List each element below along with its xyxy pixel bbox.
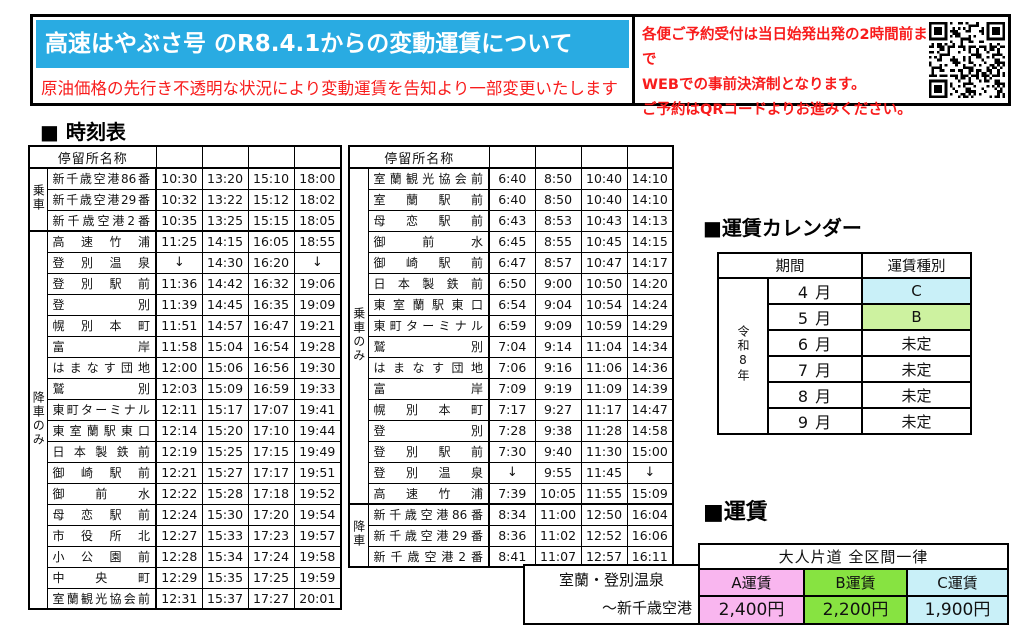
time-cell: 12:27 — [156, 525, 202, 546]
time-cell: 16:06 — [627, 525, 673, 546]
time-cell: 18:55 — [294, 231, 341, 252]
time-cell: 6:59 — [489, 315, 535, 336]
time-cell: 15:35 — [202, 567, 248, 588]
time-cell: 16:04 — [627, 504, 673, 525]
time-cell: 13:25 — [202, 210, 248, 231]
fare-type-cell: B — [862, 304, 971, 330]
station-cell: 富岸 — [47, 336, 156, 357]
table-row: 乗車のみ室蘭観光協会前6:408:5010:4014:10 — [349, 168, 673, 189]
time-cell: 19:49 — [294, 441, 341, 462]
time-cell: 16:20 — [248, 252, 294, 273]
time-cell: 15:17 — [202, 399, 248, 420]
time-cell: 17:25 — [248, 567, 294, 588]
table-row: 新千歳空港29番8:3611:0212:5216:06 — [349, 525, 673, 546]
time-cell: 19:44 — [294, 420, 341, 441]
table-row: はまなす団地7:069:1611:0614:36 — [349, 357, 673, 378]
station-cell: 御崎駅前 — [47, 462, 156, 483]
time-cell: 15:33 — [202, 525, 248, 546]
time-column-header — [248, 146, 294, 168]
time-cell: 6:40 — [489, 189, 535, 210]
time-cell: 9:16 — [535, 357, 581, 378]
table-row: 高速竹浦7:3910:0511:5515:09 — [349, 483, 673, 504]
station-cell: 高速竹浦 — [368, 483, 489, 504]
time-cell: 14:13 — [627, 210, 673, 231]
fare-heading: ■運賃 — [703, 494, 768, 526]
station-cell: 富岸 — [368, 378, 489, 399]
skip-arrow-cell: ↓ — [294, 252, 341, 273]
time-cell: 15:27 — [202, 462, 248, 483]
stop-name-header: 停留所名称 — [29, 146, 156, 168]
time-cell: 17:07 — [248, 399, 294, 420]
station-cell: 市役所北 — [47, 525, 156, 546]
month-cell: 5 月 — [768, 304, 862, 330]
time-cell: 11:55 — [581, 483, 627, 504]
time-column-header — [489, 146, 535, 168]
time-cell: 7:06 — [489, 357, 535, 378]
time-cell: 15:09 — [627, 483, 673, 504]
table-row: はまなす団地12:0015:0616:5619:30 — [29, 357, 341, 378]
station-cell: 登別駅前 — [368, 441, 489, 462]
time-cell: 19:09 — [294, 294, 341, 315]
station-cell: 新千歳空港86番 — [47, 168, 156, 189]
time-cell: 14:29 — [627, 315, 673, 336]
time-cell: 15:10 — [248, 168, 294, 189]
time-cell: 15:09 — [202, 378, 248, 399]
time-cell: 14:15 — [202, 231, 248, 252]
table-row: 登別温泉↓9:5511:45↓ — [349, 462, 673, 483]
station-cell: 鷲別 — [368, 336, 489, 357]
time-cell: 15:15 — [248, 210, 294, 231]
time-cell: 11:00 — [535, 504, 581, 525]
station-cell: 登別駅前 — [47, 273, 156, 294]
time-cell: 11:45 — [581, 462, 627, 483]
time-cell: 14:36 — [627, 357, 673, 378]
banner-subtitle: 原油価格の先行き不透明な状況により変動運賃を告知より一部変更いたします — [41, 75, 629, 99]
time-cell: 10:40 — [581, 168, 627, 189]
time-cell: 17:23 — [248, 525, 294, 546]
calendar-row: 令和8年4 月C — [718, 278, 971, 304]
time-cell: 11:51 — [156, 315, 202, 336]
time-cell: 14:17 — [627, 252, 673, 273]
station-cell: 新千歳空港2番 — [47, 210, 156, 231]
group-label-text: 降車 — [353, 520, 365, 548]
station-cell: 高速竹浦 — [47, 231, 156, 252]
table-row: 富岸7:099:1911:0914:39 — [349, 378, 673, 399]
time-cell: 10:32 — [156, 189, 202, 210]
fare-header-cell: 大人片道 全区間一律 — [698, 543, 1009, 570]
time-cell: 8:57 — [535, 252, 581, 273]
station-cell: 中央町 — [47, 567, 156, 588]
period-header: 期間 — [718, 253, 862, 278]
time-cell: 12:28 — [156, 546, 202, 567]
fare-type-cell: 未定 — [862, 356, 971, 382]
time-cell: 11:09 — [581, 378, 627, 399]
time-column-header — [627, 146, 673, 168]
time-cell: 17:27 — [248, 588, 294, 609]
station-cell: 東室蘭駅東口 — [368, 294, 489, 315]
time-cell: 18:02 — [294, 189, 341, 210]
station-cell: 母恋駅前 — [47, 504, 156, 525]
time-cell: 11:39 — [156, 294, 202, 315]
notice-line-1: 各便ご予約受付は当日始発出発の2時間前まで — [642, 23, 932, 73]
table-row: 登別駅前11:3614:4216:3219:06 — [29, 273, 341, 294]
station-cell: 登別温泉 — [47, 252, 156, 273]
time-column-header — [294, 146, 341, 168]
time-cell: 15:04 — [202, 336, 248, 357]
station-cell: 東町ターミナル — [47, 399, 156, 420]
time-cell: 6:54 — [489, 294, 535, 315]
time-cell: 19:06 — [294, 273, 341, 294]
station-cell: 日本製鉄前 — [368, 273, 489, 294]
fare-type-label: A運賃 — [698, 568, 805, 597]
time-cell: 15:34 — [202, 546, 248, 567]
fare-route-line1: 室蘭・登別温泉 — [531, 569, 692, 590]
skip-arrow-cell: ↓ — [156, 252, 202, 273]
group-label: 降車 — [349, 504, 368, 567]
month-cell: 6 月 — [768, 330, 862, 356]
time-cell: 6:43 — [489, 210, 535, 231]
time-cell: 8:55 — [535, 231, 581, 252]
time-cell: 10:47 — [581, 252, 627, 273]
time-cell: 10:35 — [156, 210, 202, 231]
fare-price: 1,900円 — [906, 595, 1009, 625]
time-cell: 9:19 — [535, 378, 581, 399]
time-cell: 16:56 — [248, 357, 294, 378]
time-cell: 19:51 — [294, 462, 341, 483]
year-label: 令和8年 — [718, 278, 768, 434]
time-cell: 15:37 — [202, 588, 248, 609]
time-cell: 19:41 — [294, 399, 341, 420]
table-row: 登別11:3914:4516:3519:09 — [29, 294, 341, 315]
time-cell: 16:47 — [248, 315, 294, 336]
time-cell: 10:30 — [156, 168, 202, 189]
banner-divider — [632, 17, 635, 103]
time-cell: 15:06 — [202, 357, 248, 378]
time-cell: 16:35 — [248, 294, 294, 315]
time-column-header — [202, 146, 248, 168]
time-cell: 7:39 — [489, 483, 535, 504]
time-cell: 12:21 — [156, 462, 202, 483]
time-cell: 16:32 — [248, 273, 294, 294]
time-cell: 8:50 — [535, 189, 581, 210]
group-label: 降車のみ — [29, 231, 47, 609]
table-row: 小公園前12:2815:3417:2419:58 — [29, 546, 341, 567]
time-cell: 9:04 — [535, 294, 581, 315]
time-cell: 14:10 — [627, 168, 673, 189]
time-cell: 6:45 — [489, 231, 535, 252]
time-cell: 9:14 — [535, 336, 581, 357]
group-label: 乗車 — [29, 168, 47, 231]
time-cell: 8:50 — [535, 168, 581, 189]
time-cell: 6:47 — [489, 252, 535, 273]
skip-arrow-cell: ↓ — [627, 462, 673, 483]
time-cell: 14:10 — [627, 189, 673, 210]
fare-type-cell: 未定 — [862, 382, 971, 408]
table-row: 幌別本町11:5114:5716:4719:21 — [29, 315, 341, 336]
fare-calendar-table: 期間運賃種別令和8年4 月C5 月B6 月未定7 月未定8 月未定9 月未定 — [717, 252, 972, 435]
time-cell: 12:50 — [581, 504, 627, 525]
time-column-header — [535, 146, 581, 168]
station-cell: 御前水 — [368, 231, 489, 252]
time-cell: 15:20 — [202, 420, 248, 441]
table-row: 母恋駅前12:2415:3017:2019:54 — [29, 504, 341, 525]
time-cell: 19:30 — [294, 357, 341, 378]
table-row: 鷲別7:049:1411:0414:34 — [349, 336, 673, 357]
table-row: 東室蘭駅東口6:549:0410:5414:24 — [349, 294, 673, 315]
station-cell: 登別 — [47, 294, 156, 315]
time-cell: 7:09 — [489, 378, 535, 399]
time-cell: 17:18 — [248, 483, 294, 504]
stop-name-header: 停留所名称 — [349, 146, 489, 168]
station-cell: 日本製鉄前 — [47, 441, 156, 462]
time-cell: 14:42 — [202, 273, 248, 294]
table-row: 室蘭駅前6:408:5010:4014:10 — [349, 189, 673, 210]
time-cell: 17:24 — [248, 546, 294, 567]
table-row: 富岸11:5815:0416:5419:28 — [29, 336, 341, 357]
station-cell: 新千歳空港2番 — [368, 546, 489, 567]
table-row: 日本製鉄前6:509:0010:5014:20 — [349, 273, 673, 294]
table-row: 室蘭観光協会前12:3115:3717:2720:01 — [29, 588, 341, 609]
table-row: 登別7:289:3811:2814:58 — [349, 420, 673, 441]
time-cell: 11:25 — [156, 231, 202, 252]
time-cell: 19:59 — [294, 567, 341, 588]
time-cell: 16:54 — [248, 336, 294, 357]
station-cell: 鷲別 — [47, 378, 156, 399]
fare-type-cell: 未定 — [862, 330, 971, 356]
time-cell: 9:55 — [535, 462, 581, 483]
fare-route-cell: 室蘭・登別温泉 〜新千歳空港 — [523, 564, 700, 625]
time-cell: 10:59 — [581, 315, 627, 336]
time-cell: 10:54 — [581, 294, 627, 315]
notice-line-3: ご予約はQRコードよりお進みください。 — [642, 98, 932, 123]
station-cell: はまなす団地 — [368, 357, 489, 378]
time-cell: 17:17 — [248, 462, 294, 483]
calendar-heading: ■運賃カレンダー — [703, 212, 862, 241]
table-row: 東町ターミナル12:1115:1717:0719:41 — [29, 399, 341, 420]
time-cell: 14:47 — [627, 399, 673, 420]
time-cell: 6:40 — [489, 168, 535, 189]
time-cell: 12:03 — [156, 378, 202, 399]
time-cell: 7:17 — [489, 399, 535, 420]
table-row: 降車のみ高速竹浦11:2514:1516:0518:55 — [29, 231, 341, 252]
station-cell: 新千歳空港29番 — [47, 189, 156, 210]
table-row: 母恋駅前6:438:5310:4314:13 — [349, 210, 673, 231]
time-cell: 9:38 — [535, 420, 581, 441]
fare-type-label: B運賃 — [803, 568, 908, 597]
group-label-text: 乗車 — [32, 184, 44, 212]
time-cell: 12:11 — [156, 399, 202, 420]
time-cell: 11:04 — [581, 336, 627, 357]
table-row: 登別駅前7:309:4011:3015:00 — [349, 441, 673, 462]
table-row: 御前水12:2215:2817:1819:52 — [29, 483, 341, 504]
station-cell: 御前水 — [47, 483, 156, 504]
time-cell: 9:09 — [535, 315, 581, 336]
table-row: 御前水6:458:5510:4514:15 — [349, 231, 673, 252]
station-cell: 室蘭観光協会前 — [368, 168, 489, 189]
station-cell: 幌別本町 — [368, 399, 489, 420]
header-banner: 高速はやぶさ号 のR8.4.1からの変動運賃について 原油価格の先行き不透明な状… — [30, 14, 1011, 106]
time-cell: 12:14 — [156, 420, 202, 441]
month-cell: 4 月 — [768, 278, 862, 304]
time-cell: 14:57 — [202, 315, 248, 336]
table-row: 市役所北12:2715:3317:2319:57 — [29, 525, 341, 546]
time-cell: 11:02 — [535, 525, 581, 546]
time-cell: 14:58 — [627, 420, 673, 441]
table-row: 東室蘭駅東口12:1415:2017:1019:44 — [29, 420, 341, 441]
time-cell: 9:27 — [535, 399, 581, 420]
table-row: 乗車新千歳空港86番10:3013:2015:1018:00 — [29, 168, 341, 189]
time-cell: 15:12 — [248, 189, 294, 210]
time-cell: 19:54 — [294, 504, 341, 525]
table-row: 新千歳空港29番10:3213:2215:1218:02 — [29, 189, 341, 210]
station-cell: 母恋駅前 — [368, 210, 489, 231]
time-cell: 10:43 — [581, 210, 627, 231]
time-cell: 6:50 — [489, 273, 535, 294]
time-cell: 10:40 — [581, 189, 627, 210]
table-row: 東町ターミナル6:599:0910:5914:29 — [349, 315, 673, 336]
page-title: 高速はやぶさ号 のR8.4.1からの変動運賃について — [36, 20, 629, 68]
time-cell: 7:30 — [489, 441, 535, 462]
time-cell: 17:20 — [248, 504, 294, 525]
time-cell: 16:59 — [248, 378, 294, 399]
table-row: 中央町12:2915:3517:2519:59 — [29, 567, 341, 588]
time-cell: 14:20 — [627, 273, 673, 294]
table-row: 降車新千歳空港86番8:3411:0012:5016:04 — [349, 504, 673, 525]
table-row: 登別温泉↓14:3016:20↓ — [29, 252, 341, 273]
station-cell: 新千歳空港29番 — [368, 525, 489, 546]
time-cell: 8:53 — [535, 210, 581, 231]
station-cell: はまなす団地 — [47, 357, 156, 378]
time-cell: 10:50 — [581, 273, 627, 294]
time-cell: 15:28 — [202, 483, 248, 504]
station-cell: 東室蘭駅東口 — [47, 420, 156, 441]
time-cell: 18:05 — [294, 210, 341, 231]
table-row: 御崎駅前12:2115:2717:1719:51 — [29, 462, 341, 483]
time-cell: 18:00 — [294, 168, 341, 189]
time-cell: 15:00 — [627, 441, 673, 462]
time-cell: 19:21 — [294, 315, 341, 336]
time-cell: 11:58 — [156, 336, 202, 357]
time-cell: 15:25 — [202, 441, 248, 462]
page: 高速はやぶさ号 のR8.4.1からの変動運賃について 原油価格の先行き不透明な状… — [0, 0, 1024, 628]
time-cell: 19:28 — [294, 336, 341, 357]
station-cell: 登別 — [368, 420, 489, 441]
time-column-header — [581, 146, 627, 168]
month-cell: 9 月 — [768, 408, 862, 434]
month-cell: 8 月 — [768, 382, 862, 408]
station-cell: 室蘭観光協会前 — [47, 588, 156, 609]
table-row: 幌別本町7:179:2711:1714:47 — [349, 399, 673, 420]
time-cell: 19:52 — [294, 483, 341, 504]
time-cell: 12:00 — [156, 357, 202, 378]
time-cell: 16:05 — [248, 231, 294, 252]
fare-type-label: C運賃 — [906, 568, 1009, 597]
time-cell: 10:45 — [581, 231, 627, 252]
time-cell: 11:17 — [581, 399, 627, 420]
fare-price: 2,400円 — [698, 595, 805, 625]
skip-arrow-cell: ↓ — [489, 462, 535, 483]
time-cell: 19:57 — [294, 525, 341, 546]
fare-type-cell: C — [862, 278, 971, 304]
time-cell: 11:30 — [581, 441, 627, 462]
time-cell: 14:34 — [627, 336, 673, 357]
fare-price: 2,200円 — [803, 595, 908, 625]
time-cell: 14:15 — [627, 231, 673, 252]
time-cell: 9:00 — [535, 273, 581, 294]
time-cell: 8:34 — [489, 504, 535, 525]
time-cell: 13:22 — [202, 189, 248, 210]
table-row: 鷲別12:0315:0916:5919:33 — [29, 378, 341, 399]
month-cell: 7 月 — [768, 356, 862, 382]
table-row: 新千歳空港2番10:3513:2515:1518:05 — [29, 210, 341, 231]
time-cell: 12:52 — [581, 525, 627, 546]
qr-code-icon — [929, 22, 1005, 98]
time-cell: 19:33 — [294, 378, 341, 399]
timetable-heading: ■ 時刻表 — [40, 116, 126, 145]
station-cell: 小公園前 — [47, 546, 156, 567]
reservation-notice: 各便ご予約受付は当日始発出発の2時間前まで WEBでの事前決済制となります。 ご… — [642, 23, 932, 123]
time-cell: 12:24 — [156, 504, 202, 525]
station-cell: 幌別本町 — [47, 315, 156, 336]
time-cell: 12:22 — [156, 483, 202, 504]
time-cell: 7:04 — [489, 336, 535, 357]
time-cell: 14:39 — [627, 378, 673, 399]
station-cell: 登別温泉 — [368, 462, 489, 483]
time-cell: 13:20 — [202, 168, 248, 189]
time-cell: 12:29 — [156, 567, 202, 588]
fare-route-line2: 〜新千歳空港 — [531, 597, 692, 618]
time-cell: 14:45 — [202, 294, 248, 315]
station-cell: 室蘭駅前 — [368, 189, 489, 210]
time-cell: 10:05 — [535, 483, 581, 504]
fare-type-cell: 未定 — [862, 408, 971, 434]
group-label-text: 乗車のみ — [353, 307, 365, 363]
time-cell: 12:31 — [156, 588, 202, 609]
timetable-outbound: 停留所名称乗車新千歳空港86番10:3013:2015:1018:00新千歳空港… — [28, 145, 342, 610]
time-cell: 14:24 — [627, 294, 673, 315]
group-label: 乗車のみ — [349, 168, 368, 504]
time-cell: 11:36 — [156, 273, 202, 294]
timetable-return: 停留所名称乗車のみ室蘭観光協会前6:408:5010:4014:10室蘭駅前6:… — [348, 145, 674, 568]
table-row: 御崎駅前6:478:5710:4714:17 — [349, 252, 673, 273]
time-cell: 11:06 — [581, 357, 627, 378]
station-cell: 新千歳空港86番 — [368, 504, 489, 525]
time-cell: 12:19 — [156, 441, 202, 462]
time-cell: 19:58 — [294, 546, 341, 567]
time-cell: 20:01 — [294, 588, 341, 609]
time-column-header — [156, 146, 202, 168]
notice-line-2: WEBでの事前決済制となります。 — [642, 73, 932, 98]
time-cell: 15:30 — [202, 504, 248, 525]
year-label-text: 令和8年 — [737, 325, 749, 383]
table-row: 日本製鉄前12:1915:2517:1519:49 — [29, 441, 341, 462]
fare-type-header: 運賃種別 — [862, 253, 971, 278]
station-cell: 御崎駅前 — [368, 252, 489, 273]
station-cell: 東町ターミナル — [368, 315, 489, 336]
time-cell: 11:28 — [581, 420, 627, 441]
time-cell: 17:10 — [248, 420, 294, 441]
time-cell: 9:40 — [535, 441, 581, 462]
time-cell: 7:28 — [489, 420, 535, 441]
time-cell: 17:15 — [248, 441, 294, 462]
time-cell: 8:36 — [489, 525, 535, 546]
group-label-text: 降車のみ — [32, 391, 44, 447]
time-cell: 14:30 — [202, 252, 248, 273]
